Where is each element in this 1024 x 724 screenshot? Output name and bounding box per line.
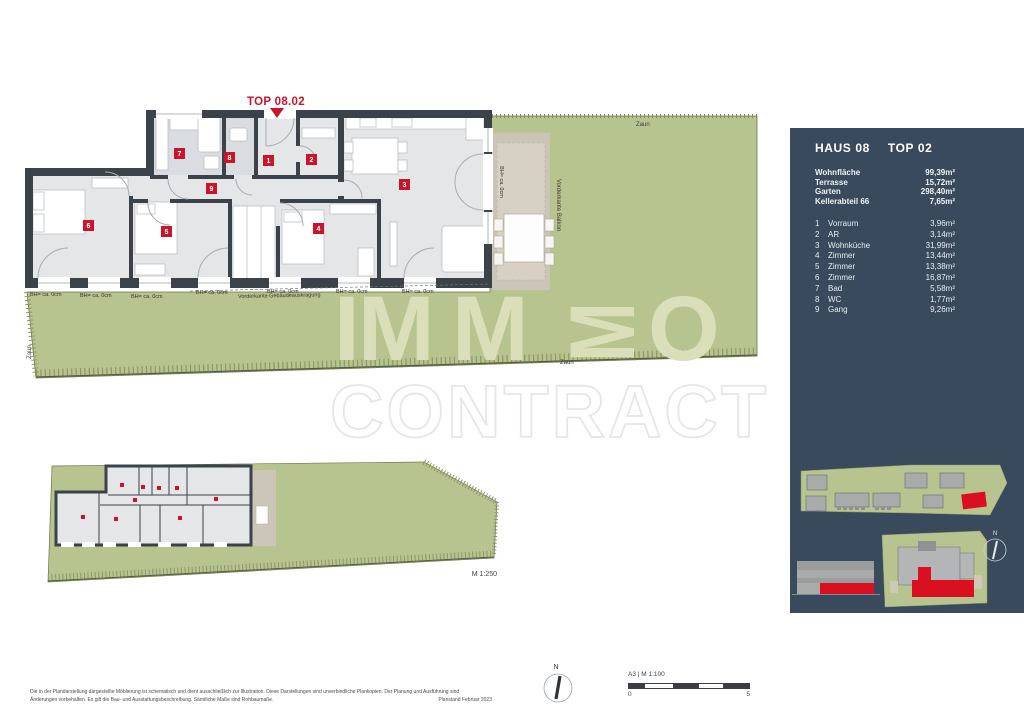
room-area: 5,58m²: [930, 284, 955, 295]
scale-numbers: 0 5: [628, 691, 750, 698]
tv-board: [390, 222, 397, 266]
disclaimer-line2: Änderungen vorbehalten. Es gilt die Bau-…: [30, 696, 273, 704]
top-label: TOP 02: [888, 141, 933, 155]
summary-row: Garten 298,40m²: [815, 187, 955, 197]
scale-bar-block: A3 | M 1:100 0 5: [628, 671, 750, 698]
badge-4: 4: [317, 226, 321, 233]
floor-plan-page: I M M M O Zaun Zaun Zaun Vorderkante Bal…: [0, 0, 1024, 724]
summary-label: Garten: [815, 187, 841, 197]
highlighted-unit-section: [820, 583, 874, 594]
room-number: 8: [815, 295, 828, 306]
storage-shelf: [302, 128, 335, 138]
summary-row: Kellerabteil 66 7,65m²: [815, 197, 955, 207]
room-number: 2: [815, 230, 828, 241]
summary-value: 7,65m²: [930, 197, 955, 207]
pillow: [137, 204, 155, 214]
dining-chair: [344, 142, 353, 153]
mini-site-plan: M 1:250: [40, 452, 510, 597]
room-number: 9: [815, 305, 828, 316]
room-row: 7Bad5,58m²: [815, 284, 955, 295]
scale-segment: [723, 684, 749, 688]
watermark-contract: CONTRACT: [330, 370, 769, 453]
room-row: 4Zimmer13,44m²: [815, 251, 955, 262]
fridge: [466, 116, 484, 140]
room-row: 3Wohnküche31,99m²: [815, 241, 955, 252]
room-number: 1: [815, 219, 828, 230]
kitchen-sink: [360, 118, 376, 127]
watermark-immo: I M M M O: [334, 278, 720, 380]
zaun-label-top: Zaun: [636, 122, 650, 128]
room-area: 9,26m²: [930, 305, 955, 316]
room-name: Bad: [828, 284, 930, 295]
room-name: Vorraum: [828, 219, 930, 230]
room-row: 2AR3,14m²: [815, 230, 955, 241]
watermark-letter: M: [452, 278, 529, 380]
room-list: 1Vorraum3,96m² 2AR3,14m² 3Wohnküche31,99…: [815, 219, 955, 316]
sofa: [442, 226, 486, 272]
wc-toilet: [230, 128, 247, 141]
room-number: 3: [815, 241, 828, 252]
badge-2: 2: [310, 157, 314, 164]
summary-value: 99,39m²: [925, 168, 955, 178]
bh-label: BH= ca. 0cm: [336, 289, 368, 295]
badge-7: 7: [178, 151, 182, 158]
dining-chair: [398, 142, 407, 153]
scale-five: 5: [746, 691, 750, 698]
summary-value: 15,72m²: [925, 178, 955, 188]
room-name: AR: [828, 230, 930, 241]
scale-segment: [645, 684, 673, 688]
highlighted-unit-detail: [912, 580, 974, 597]
summary-value: 298,40m²: [921, 187, 955, 197]
room-area: 13,38m²: [926, 262, 955, 273]
room-name: Zimmer: [828, 262, 926, 273]
scale-segment: [699, 684, 723, 688]
room-number: 5: [815, 262, 828, 273]
north-compass-icon: N: [984, 531, 1006, 561]
mini-plan-scale-label: M 1:250: [472, 571, 497, 578]
room-row: 5Zimmer13,38m²: [815, 262, 955, 273]
room-area: 31,99m²: [926, 241, 955, 252]
dining-table: [352, 138, 398, 174]
detail-plan-thumbnail: [882, 531, 987, 607]
room-name: Zimmer: [828, 251, 926, 262]
watermark-letter-rotated: M: [551, 302, 654, 362]
area-summary: Wohnfläche 99,39m² Terrasse 15,72m² Gart…: [815, 168, 955, 207]
info-panel: HAUS 08 TOP 02 Wohnfläche 99,39m² Terras…: [790, 128, 1024, 613]
bath-toilet: [204, 156, 219, 169]
bh-label-vertical: BH= ca. 0cm: [498, 166, 504, 198]
room-area: 3,14m²: [930, 230, 955, 241]
badge-5: 5: [165, 229, 169, 236]
summary-label: Terrasse: [815, 178, 848, 188]
kitchen-hob: [392, 118, 412, 127]
room-name: Zimmer: [828, 273, 926, 284]
room-name: WC: [828, 295, 930, 306]
disclaimer-text: Die in der Plandarstellung dargestellte …: [30, 688, 492, 704]
room-name: Gang: [828, 305, 930, 316]
badge-9: 9: [210, 186, 214, 193]
disclaimer-line1: Die in der Plandarstellung dargestellte …: [30, 689, 459, 695]
watermark-letter: O: [648, 278, 720, 380]
scale-segment: [629, 684, 645, 688]
dining-chair: [398, 160, 407, 171]
room-area: 16,87m²: [926, 273, 955, 284]
haus-label: HAUS 08: [815, 141, 870, 155]
room-number: 6: [815, 273, 828, 284]
room-area: 3,96m²: [930, 219, 955, 230]
highlighted-unit-site: [961, 492, 987, 510]
bh-label: BH= ca. 0cm: [30, 292, 62, 298]
north-label: N: [553, 664, 558, 671]
site-plan-thumbnail: [801, 465, 1007, 515]
room-number: 4: [815, 251, 828, 262]
badge-3: 3: [403, 182, 407, 189]
zaun-label-left: Zaun: [27, 345, 33, 359]
room-area: 1,77m²: [930, 295, 955, 306]
room-row: 6Zimmer16,87m²: [815, 273, 955, 284]
footer-north-arrow: N: [536, 658, 580, 708]
desk-room4: [358, 248, 374, 276]
vorderkante-balkon-label: Vorderkante Balkon: [555, 179, 561, 231]
scale-zero: 0: [628, 691, 632, 698]
badge-6: 6: [87, 223, 91, 230]
format-scale-label: A3 | M 1:100: [628, 671, 750, 678]
terrace-table: [504, 214, 544, 262]
room-row: 9Gang9,26m²: [815, 305, 955, 316]
pillow: [33, 214, 44, 232]
room-number: 7: [815, 284, 828, 295]
summary-label: Kellerabteil 66: [815, 197, 869, 207]
panel-thumbnails: N: [790, 455, 1024, 613]
desk-room5: [135, 264, 165, 275]
section-thumbnail: [792, 561, 880, 595]
plan-date: Planstand Februar 2023: [438, 696, 492, 704]
bh-label: BH= ca. 0cm: [80, 293, 112, 299]
room-area: 13,44m²: [926, 251, 955, 262]
pillow: [33, 192, 44, 210]
wardrobe-room4: [330, 204, 376, 214]
scale-bar: [628, 683, 750, 689]
summary-row: Terrasse 15,72m²: [815, 178, 955, 188]
compass-n-label: N: [993, 531, 997, 537]
summary-label: Wohnfläche: [815, 168, 860, 178]
room-row: 1Vorraum3,96m²: [815, 219, 955, 230]
zaun-label-bottom: Zaun: [560, 360, 574, 366]
unit-label: TOP 08.02: [247, 96, 305, 108]
main-floor-plan: I M M M O Zaun Zaun Zaun Vorderkante Bal…: [0, 60, 770, 480]
scale-segment: [673, 684, 699, 688]
bh-label: BH= ca. 0cm: [402, 289, 434, 295]
hall-closet: [233, 206, 275, 282]
bath-cabinet: [156, 118, 168, 170]
room-row: 8WC1,77m²: [815, 295, 955, 306]
badge-8: 8: [228, 155, 232, 162]
room-name: Wohnküche: [828, 241, 926, 252]
panel-title: HAUS 08 TOP 02: [815, 141, 932, 155]
bathtub: [198, 116, 220, 152]
mini-terrace-table: [256, 506, 268, 524]
dining-chair: [344, 160, 353, 171]
summary-row: Wohnfläche 99,39m²: [815, 168, 955, 178]
bh-label: BH= ca. 0cm: [131, 294, 163, 300]
badge-1: 1: [267, 158, 271, 165]
